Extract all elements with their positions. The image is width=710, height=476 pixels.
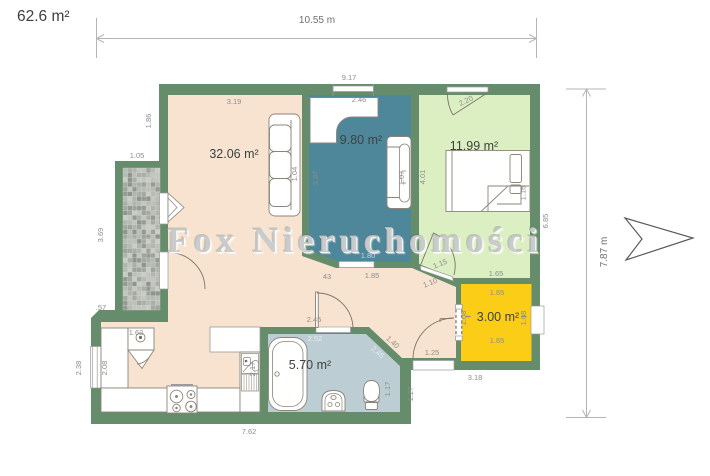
svg-text:1.07: 1.07 [397, 171, 406, 186]
svg-text:5.70 m²: 5.70 m² [289, 358, 331, 372]
svg-text:3.69: 3.69 [96, 228, 105, 243]
svg-text:32.06 m²: 32.06 m² [209, 147, 258, 161]
svg-text:2.38: 2.38 [74, 361, 83, 376]
svg-text:2.52: 2.52 [308, 334, 323, 343]
svg-text:1.65: 1.65 [490, 288, 505, 297]
svg-text:3.18: 3.18 [468, 373, 483, 382]
svg-text:3.87: 3.87 [311, 171, 320, 186]
svg-text:9.80 m²: 9.80 m² [340, 133, 382, 147]
svg-text:7.87 m: 7.87 m [599, 237, 610, 268]
svg-text:1.08: 1.08 [459, 311, 468, 326]
svg-text:3.00 m²: 3.00 m² [477, 310, 519, 324]
svg-text:1.05: 1.05 [130, 151, 145, 160]
svg-text:1.62: 1.62 [129, 328, 144, 337]
svg-text:10.55 m: 10.55 m [299, 15, 335, 26]
svg-text:2.46: 2.46 [352, 95, 367, 104]
svg-text:62.6 m²: 62.6 m² [17, 8, 70, 25]
svg-text:2.17: 2.17 [248, 362, 257, 377]
svg-text:7.62: 7.62 [242, 427, 257, 436]
svg-text:1.65: 1.65 [489, 269, 504, 278]
svg-text:43: 43 [323, 272, 331, 281]
svg-text:1.25: 1.25 [425, 348, 440, 357]
svg-text:1.16: 1.16 [519, 186, 528, 201]
svg-text:11.99 m²: 11.99 m² [450, 139, 498, 153]
svg-text:4.01: 4.01 [418, 170, 427, 185]
svg-text:3.19: 3.19 [227, 97, 242, 106]
svg-text:.57: .57 [96, 303, 106, 312]
svg-text:1.04: 1.04 [290, 167, 299, 182]
svg-text:1.86: 1.86 [144, 114, 153, 129]
svg-text:1.08: 1.08 [519, 311, 528, 326]
svg-text:1.17: 1.17 [383, 382, 392, 397]
svg-text:2.08: 2.08 [100, 361, 109, 376]
svg-text:9.17: 9.17 [342, 73, 357, 82]
svg-text:1.85: 1.85 [365, 271, 380, 280]
svg-text:1.65: 1.65 [490, 336, 505, 345]
svg-text:2.45: 2.45 [307, 315, 322, 324]
svg-text:1.27: 1.27 [406, 387, 415, 402]
